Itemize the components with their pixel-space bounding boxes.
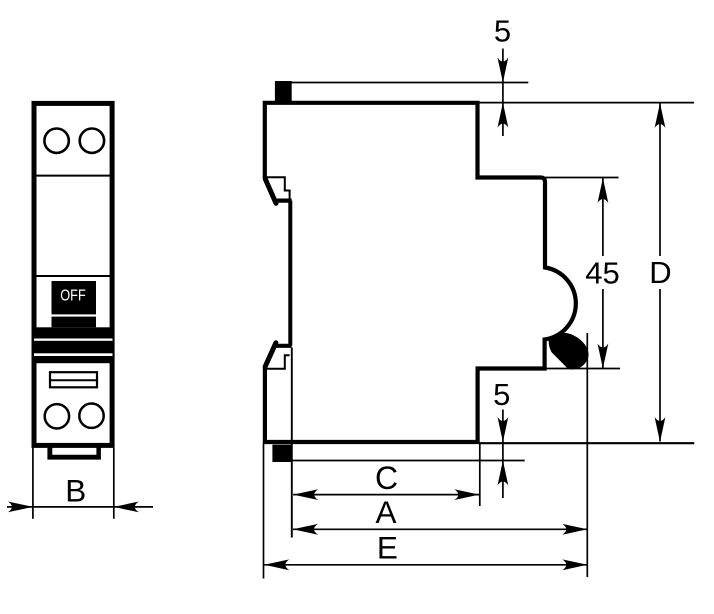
svg-text:A: A: [375, 494, 396, 530]
svg-text:B: B: [65, 472, 86, 508]
svg-text:OFF: OFF: [60, 288, 86, 305]
svg-text:C: C: [375, 460, 398, 496]
svg-text:45: 45: [585, 256, 619, 291]
svg-text:E: E: [377, 529, 398, 565]
svg-text:D: D: [649, 255, 671, 290]
svg-text:5: 5: [493, 377, 510, 412]
svg-text:5: 5: [494, 14, 511, 49]
